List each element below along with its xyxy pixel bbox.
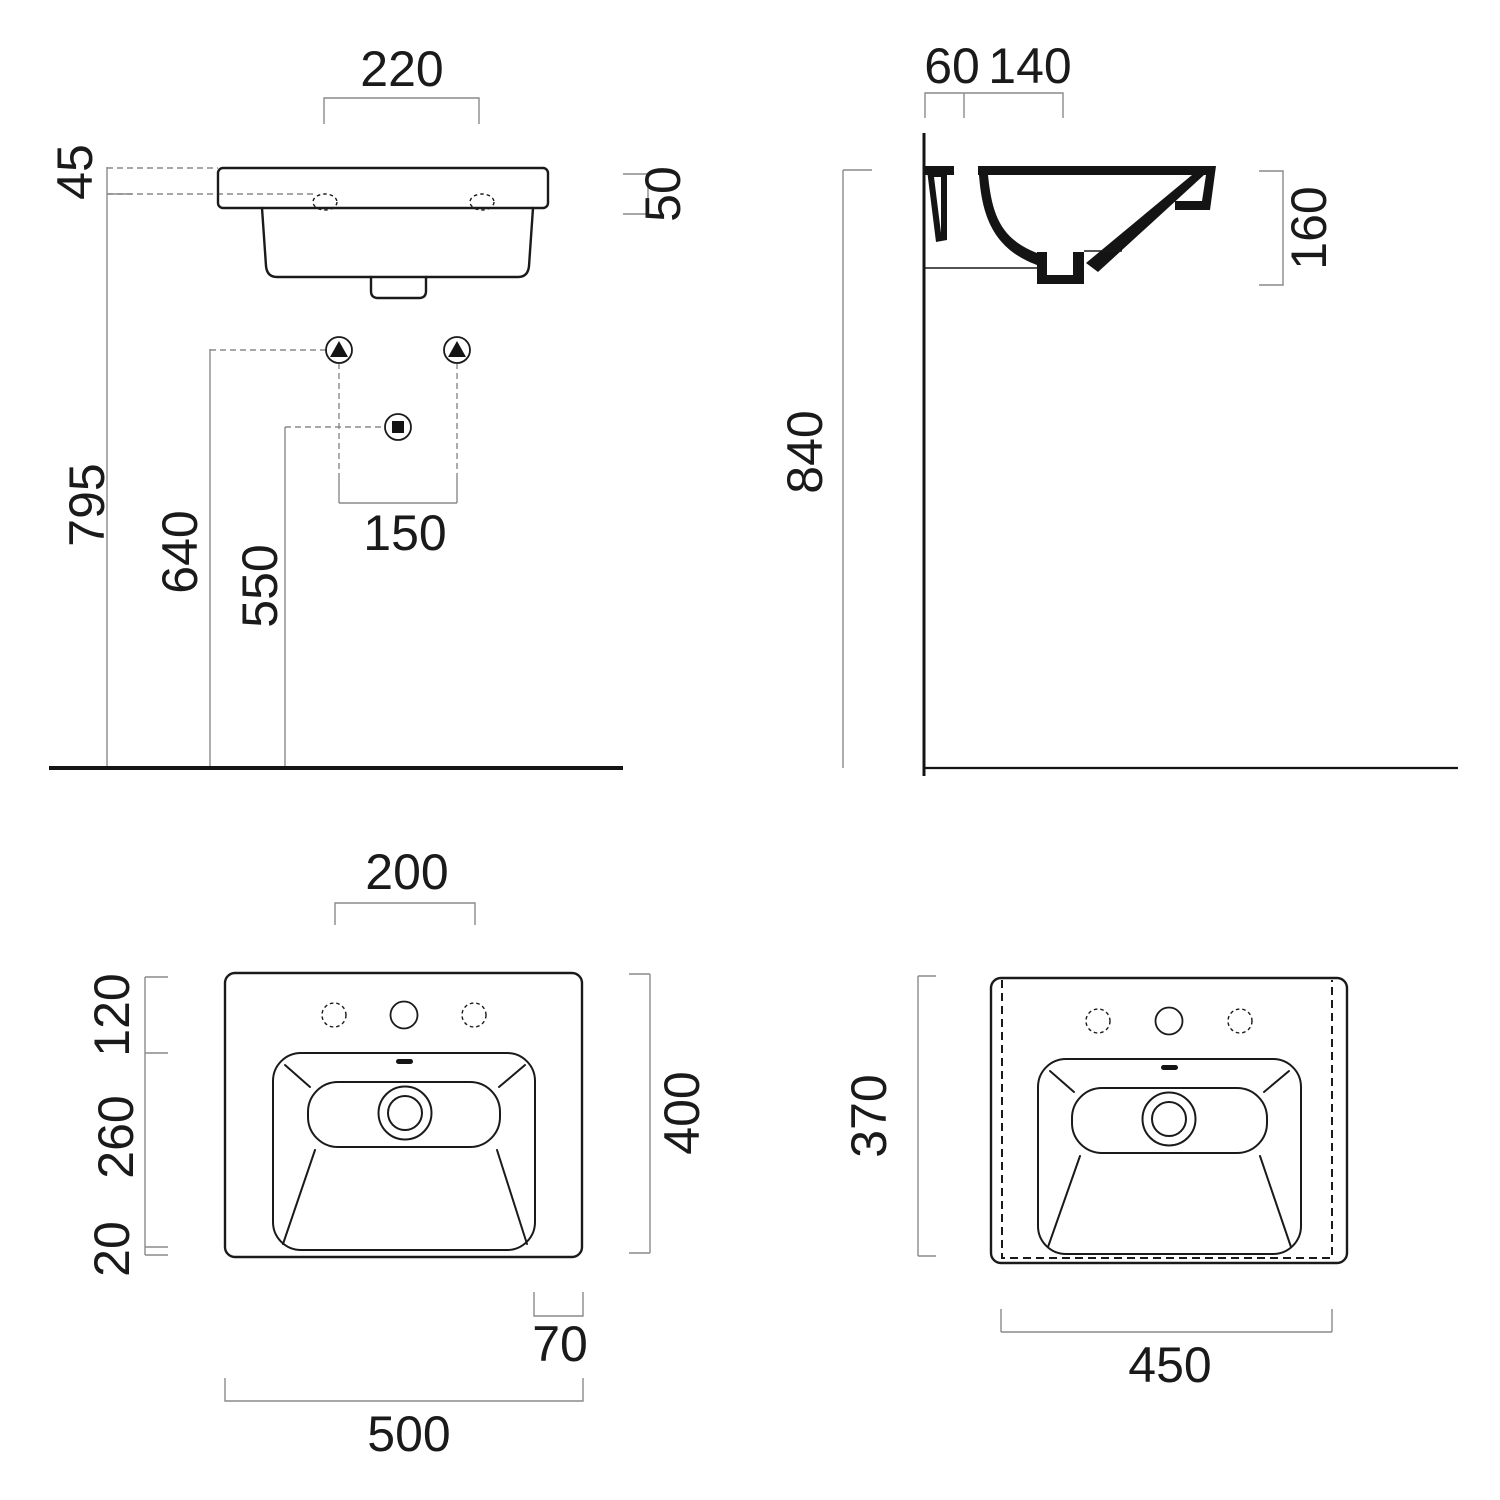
plan-tap-hole-right xyxy=(462,1003,486,1027)
underside-tap-hole-right xyxy=(1228,1009,1252,1033)
dim-bracket-220 xyxy=(324,98,479,124)
dim-label-400: 400 xyxy=(654,1071,710,1154)
underside-corner-lines xyxy=(1048,1071,1291,1247)
plan-tap-hole-left xyxy=(322,1003,346,1027)
dim-bracket-450 xyxy=(1001,1309,1332,1332)
dim-label-795: 795 xyxy=(59,463,115,546)
underside-drain-outer xyxy=(1143,1093,1196,1146)
dim-line-840 xyxy=(843,170,872,768)
dim-label-550: 550 xyxy=(232,544,288,627)
drain-boss-bottom xyxy=(1037,275,1084,284)
dim-label-840: 840 xyxy=(777,410,833,493)
dim-bracket-60-140 xyxy=(925,93,1063,118)
dim-stack-120-260-20 xyxy=(145,977,168,1255)
section-back-wall xyxy=(979,175,1040,266)
underside-bowl-flat xyxy=(1072,1088,1267,1153)
dim-label-200: 200 xyxy=(365,844,448,900)
plan-outer-outline xyxy=(225,973,582,1257)
dim-bracket-500 xyxy=(225,1378,583,1401)
basin-cross-section xyxy=(924,163,1216,284)
underside-tap-hole-center xyxy=(1156,1008,1183,1035)
dim-label-70: 70 xyxy=(532,1316,588,1372)
dim-label-640: 640 xyxy=(152,510,208,593)
dim-label-160: 160 xyxy=(1281,186,1337,269)
front-view: 220 45 50 795 640 550 150 xyxy=(47,41,691,768)
dim-bracket-200 xyxy=(335,903,475,925)
dim-bracket-400 xyxy=(629,974,650,1253)
dim-label-20: 20 xyxy=(84,1221,140,1277)
dim-label-120: 120 xyxy=(84,973,140,1056)
drawing-canvas: 220 45 50 795 640 550 150 xyxy=(0,0,1500,1500)
plan-overflow-slot xyxy=(396,1059,413,1064)
dim-label-450: 450 xyxy=(1128,1337,1211,1393)
section-break-gap-2 xyxy=(997,183,1008,207)
section-bowl-diagonal xyxy=(1086,175,1204,272)
dim-label-500: 500 xyxy=(367,1406,450,1462)
supply-symbol-right xyxy=(444,337,470,363)
underside-overflow-slot xyxy=(1161,1065,1178,1070)
plan-corner-lines xyxy=(283,1065,527,1244)
plan-view: 200 120 260 20 400 70 500 xyxy=(84,844,710,1462)
underside-tap-hole-left xyxy=(1086,1009,1110,1033)
plan-tap-hole-center xyxy=(391,1002,418,1029)
washbasin-technical-drawing: 220 45 50 795 640 550 150 xyxy=(0,0,1500,1500)
dim-bracket-70 xyxy=(534,1292,583,1316)
dim-label-140: 140 xyxy=(988,38,1071,94)
dim-label-370: 370 xyxy=(841,1074,897,1157)
front-drain-outline xyxy=(371,277,426,298)
supply-symbol-left xyxy=(326,337,352,363)
plan-bowl-flat xyxy=(308,1082,500,1147)
plan-drain-inner xyxy=(388,1096,422,1130)
waste-symbol xyxy=(385,414,411,440)
front-rim-outline xyxy=(218,168,548,208)
underside-view: 370 450 xyxy=(841,976,1347,1393)
dim-bracket-370 xyxy=(918,976,936,1256)
dim-label-50: 50 xyxy=(635,166,691,222)
dim-label-260: 260 xyxy=(88,1095,144,1178)
side-section-view: 60 140 840 160 xyxy=(777,38,1458,776)
underside-drain-inner xyxy=(1152,1102,1186,1136)
section-break-gap xyxy=(954,163,978,178)
dim-label-45: 45 xyxy=(47,144,103,200)
front-bowl-outline xyxy=(262,208,533,277)
dim-bracket-160 xyxy=(1259,171,1283,285)
dim-label-60: 60 xyxy=(924,38,980,94)
dim-label-220: 220 xyxy=(360,41,443,97)
plan-drain-outer xyxy=(379,1087,432,1140)
underside-hidden-edge xyxy=(1002,980,1332,1258)
dim-bracket-150 xyxy=(339,479,457,503)
underside-outer-outline xyxy=(991,978,1347,1263)
dim-label-150: 150 xyxy=(363,505,446,561)
